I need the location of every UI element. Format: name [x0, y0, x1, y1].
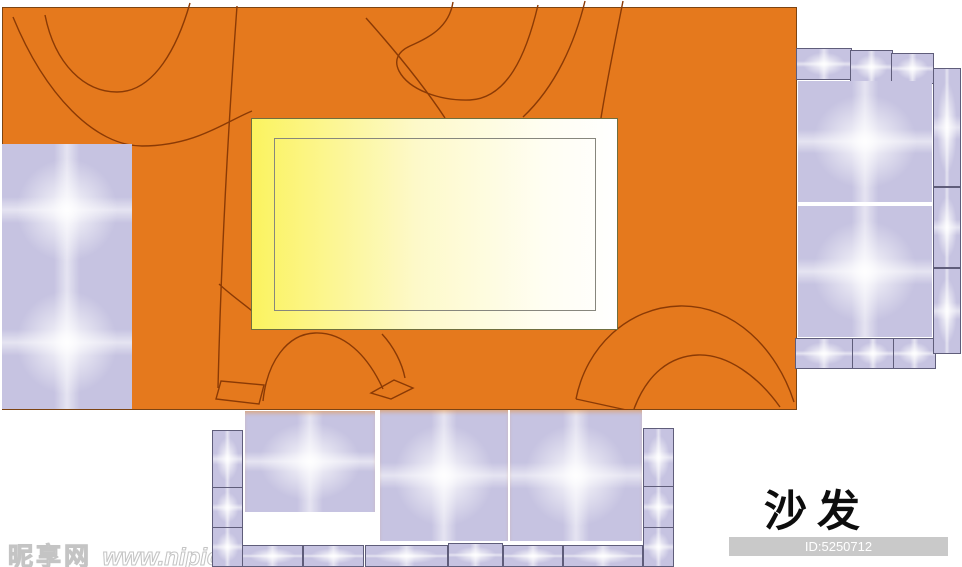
watermark-site-name: 昵享网 — [8, 543, 92, 567]
armrest-cushion — [893, 338, 936, 369]
armrest-cushion — [212, 430, 243, 488]
seat-cushion — [798, 206, 932, 337]
furniture-layout-canvas: 沙发 昵享网 www.nipic.cn ID:5250712 NO:201007… — [0, 0, 962, 567]
coffee-table — [251, 118, 618, 330]
sofa-cushion — [2, 144, 132, 277]
seat-cushion — [380, 410, 508, 541]
front-edge-cushion — [563, 545, 643, 567]
sofa-label: 沙发 — [764, 477, 870, 539]
armrest-cushion — [891, 53, 934, 84]
seat-cushion — [798, 81, 932, 202]
front-edge-cushion — [448, 543, 503, 567]
armrest-cushion — [796, 48, 852, 80]
armrest-cushion — [852, 338, 894, 369]
image-id-badge: ID:5250712 NO:20100704203641009052 — [729, 537, 948, 556]
armrest-cushion — [795, 338, 853, 369]
coffee-table-inner-outline — [274, 138, 596, 311]
sofa-cushion — [2, 276, 132, 409]
backrest-cushion — [933, 68, 961, 187]
armrest-cushion — [850, 50, 893, 84]
backrest-cushion — [933, 187, 961, 268]
armrest-cushion — [643, 428, 674, 487]
seat-cushion — [510, 410, 642, 541]
front-edge-cushion — [365, 545, 448, 567]
front-edge-cushion — [242, 545, 303, 567]
armrest-cushion — [643, 486, 674, 528]
armrest-cushion — [212, 487, 243, 528]
front-edge-cushion — [303, 545, 364, 567]
front-edge-cushion — [503, 545, 563, 567]
seat-cushion — [245, 411, 375, 512]
backrest-cushion — [933, 268, 961, 354]
armrest-cushion — [212, 527, 243, 567]
armrest-cushion — [643, 527, 674, 567]
